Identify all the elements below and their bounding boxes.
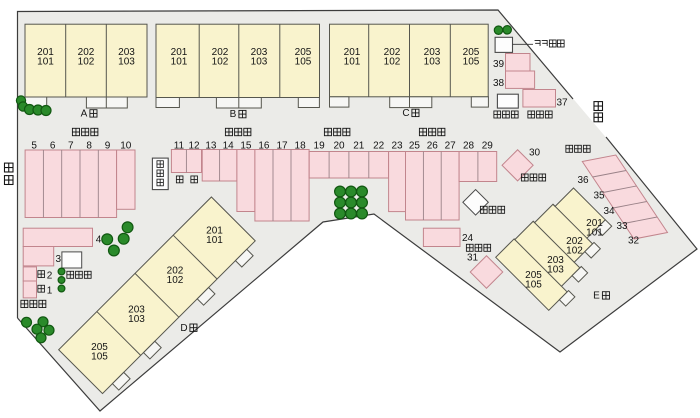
svg-text:101: 101 — [171, 57, 188, 68]
svg-text:101: 101 — [586, 228, 603, 239]
svg-text:19: 19 — [314, 140, 326, 151]
svg-text:101: 101 — [206, 235, 223, 246]
svg-text:21: 21 — [353, 140, 365, 151]
svg-text:1: 1 — [47, 285, 53, 296]
svg-text:38: 38 — [493, 78, 505, 89]
svg-text:12: 12 — [188, 140, 200, 151]
svg-text:11: 11 — [174, 140, 185, 151]
svg-text:18: 18 — [295, 140, 307, 151]
svg-text:103: 103 — [424, 57, 441, 68]
svg-text:20: 20 — [333, 140, 345, 151]
svg-text:3: 3 — [56, 254, 62, 265]
svg-text:103: 103 — [547, 265, 564, 276]
svg-text:105: 105 — [525, 280, 542, 291]
svg-text:103: 103 — [251, 57, 268, 68]
svg-text:102: 102 — [78, 57, 95, 68]
svg-text:36: 36 — [577, 175, 589, 186]
svg-text:102: 102 — [212, 57, 229, 68]
svg-text:A: A — [81, 109, 88, 120]
svg-text:103: 103 — [118, 57, 135, 68]
svg-text:105: 105 — [295, 57, 312, 68]
svg-text:4: 4 — [96, 235, 102, 246]
svg-text:35: 35 — [593, 191, 605, 202]
svg-text:34: 34 — [603, 206, 615, 217]
svg-text:C: C — [402, 108, 409, 119]
svg-text:14: 14 — [223, 140, 235, 151]
svg-text:102: 102 — [384, 57, 401, 68]
svg-text:102: 102 — [566, 246, 583, 257]
svg-text:101: 101 — [37, 57, 54, 68]
svg-text:E: E — [593, 291, 600, 302]
svg-text:30: 30 — [529, 148, 541, 159]
svg-text:25: 25 — [409, 140, 421, 151]
svg-text:7: 7 — [68, 140, 74, 151]
svg-text:16: 16 — [258, 140, 270, 151]
svg-text:32: 32 — [628, 236, 640, 247]
svg-text:23: 23 — [391, 140, 403, 151]
svg-text:10: 10 — [120, 140, 132, 151]
svg-text:13: 13 — [205, 140, 217, 151]
svg-text:2: 2 — [47, 270, 53, 281]
svg-text:37: 37 — [557, 98, 569, 109]
svg-text:5: 5 — [31, 140, 37, 151]
svg-text:24: 24 — [462, 233, 474, 244]
svg-text:26: 26 — [427, 140, 439, 151]
svg-text:27: 27 — [445, 140, 457, 151]
svg-text:6: 6 — [50, 140, 56, 151]
svg-text:17: 17 — [276, 140, 288, 151]
svg-text:105: 105 — [91, 352, 108, 363]
svg-text:9: 9 — [105, 140, 111, 151]
svg-text:D: D — [180, 323, 187, 334]
svg-text:8: 8 — [86, 140, 92, 151]
svg-text:B: B — [230, 109, 237, 120]
svg-text:28: 28 — [463, 140, 475, 151]
svg-text:31: 31 — [467, 253, 479, 264]
svg-text:29: 29 — [482, 140, 494, 151]
svg-text:103: 103 — [128, 314, 145, 325]
svg-text:39: 39 — [493, 59, 505, 70]
svg-text:22: 22 — [373, 140, 385, 151]
svg-text:15: 15 — [240, 140, 252, 151]
svg-text:101: 101 — [344, 57, 361, 68]
svg-text:33: 33 — [616, 221, 628, 232]
svg-text:105: 105 — [463, 57, 480, 68]
svg-text:102: 102 — [167, 275, 184, 286]
